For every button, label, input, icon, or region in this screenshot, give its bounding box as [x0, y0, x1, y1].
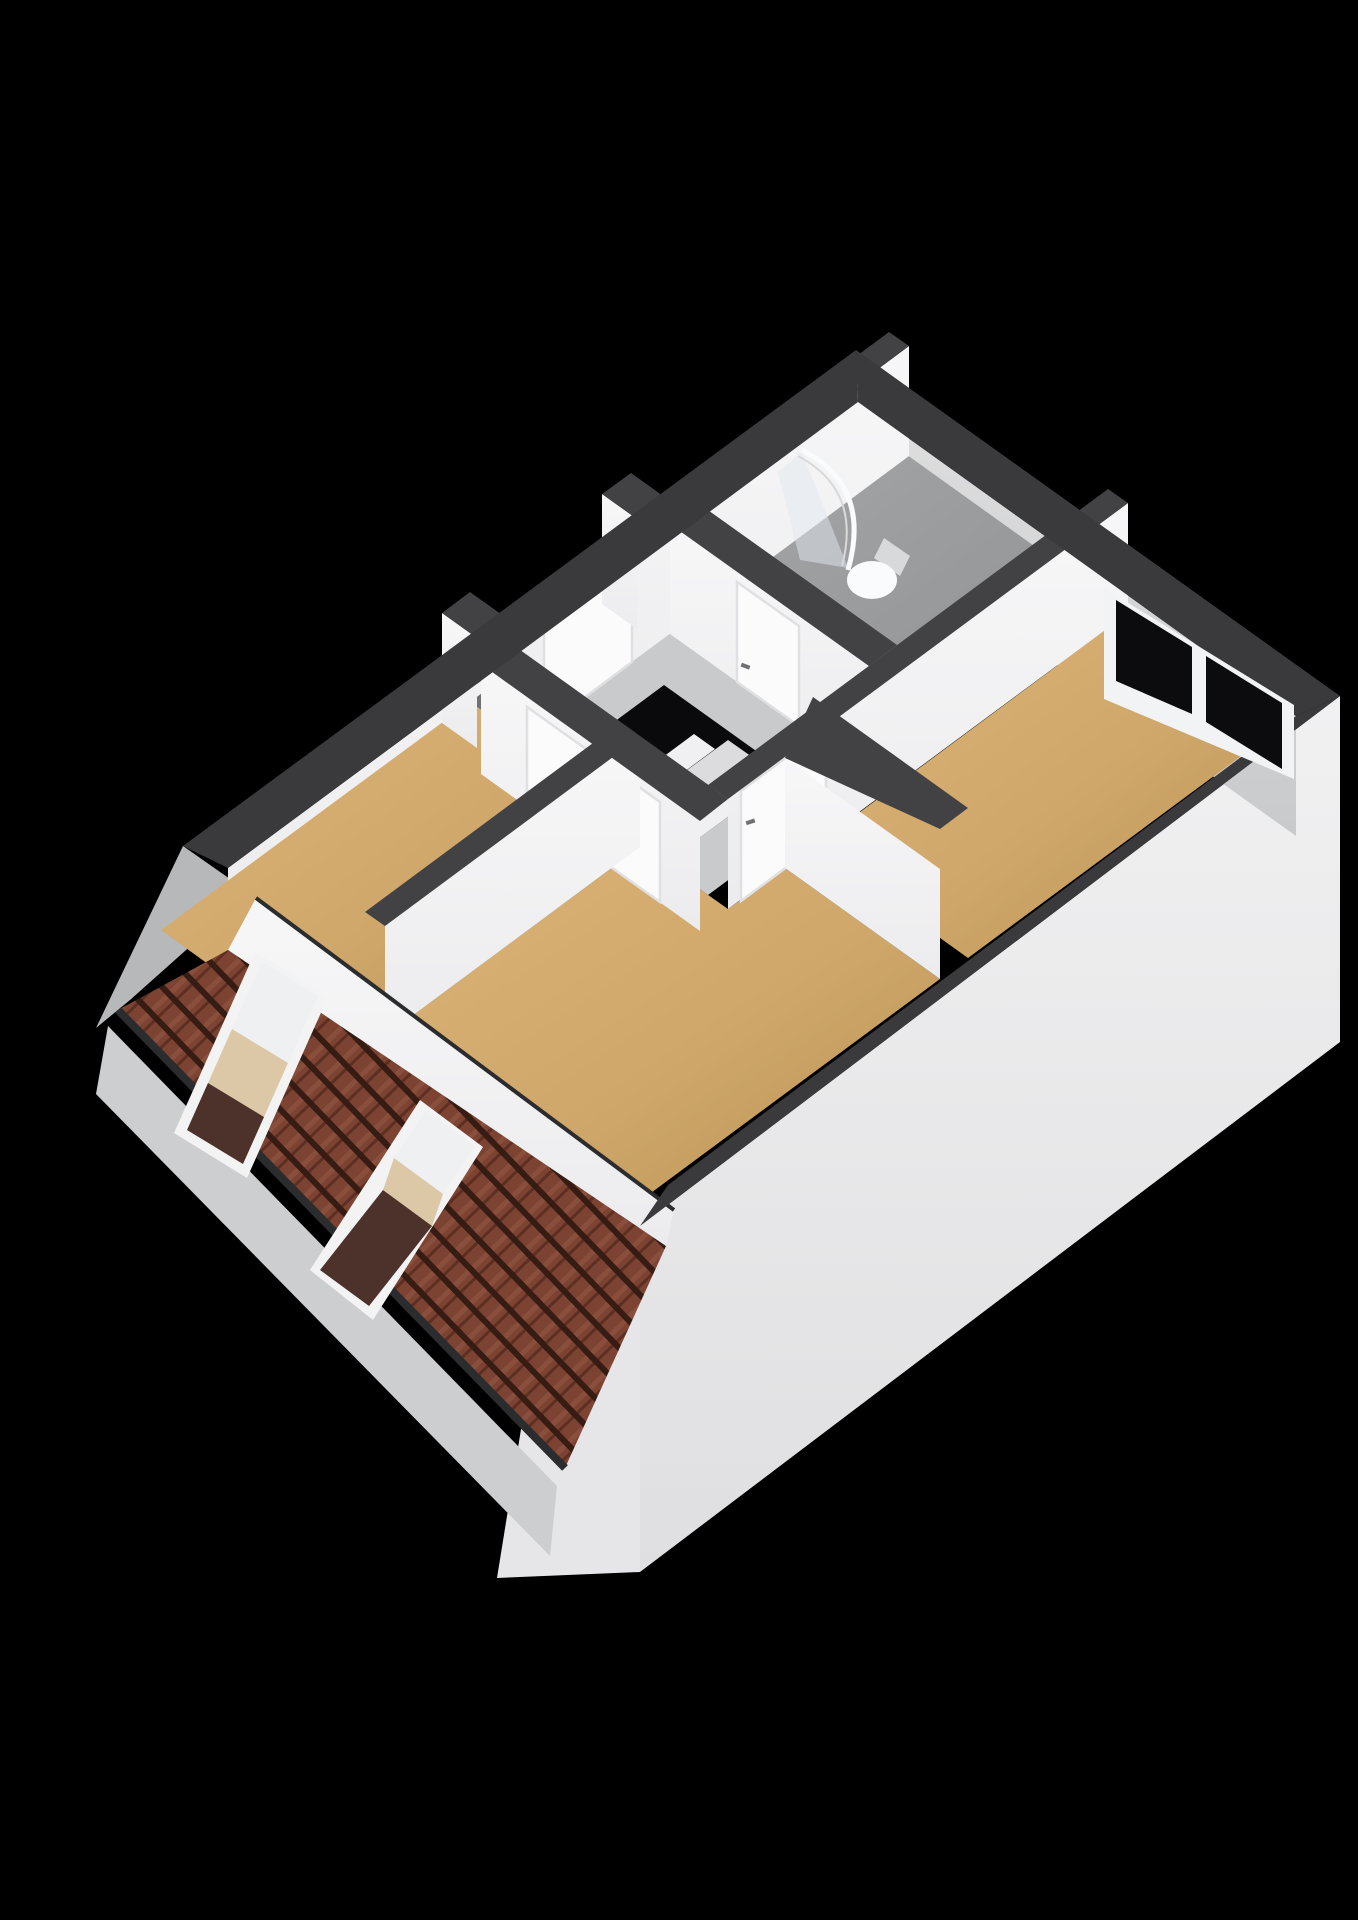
- toilet: [847, 561, 897, 599]
- floor-plan-3d: [0, 0, 1358, 1920]
- floor-plan-scene: [0, 0, 1358, 1920]
